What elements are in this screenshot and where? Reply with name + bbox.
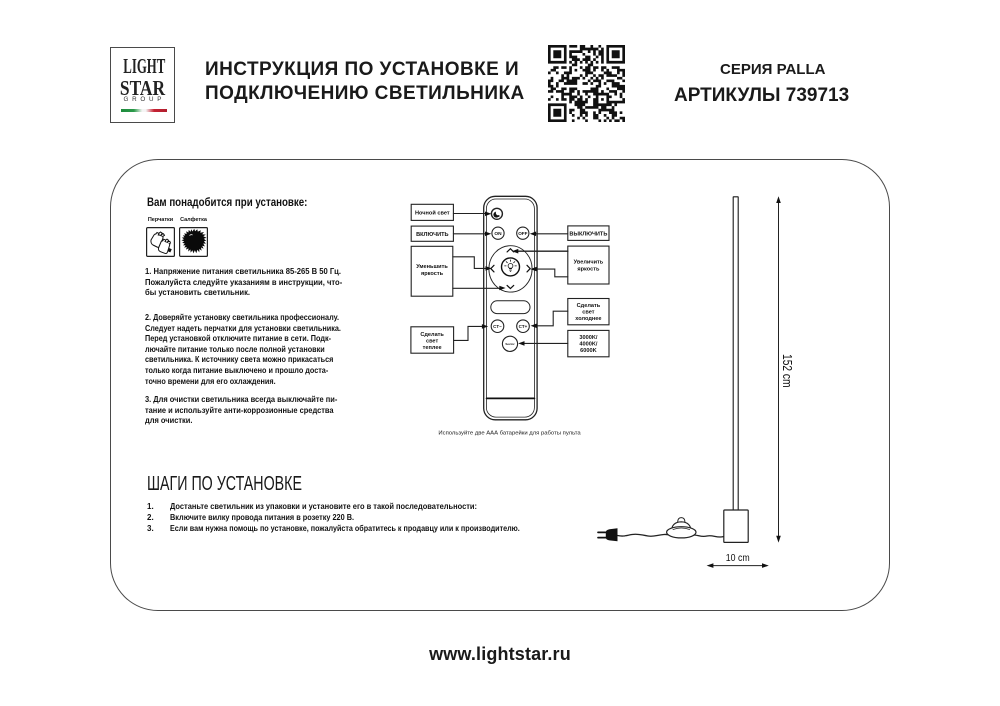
- svg-text:холоднее: холоднее: [575, 316, 601, 322]
- svg-text:Используйте две ААА батарейки: Используйте две ААА батарейки для работы…: [438, 430, 581, 437]
- svg-text:152 cm: 152 cm: [780, 354, 793, 388]
- svg-text:ВЫКЛЮЧИТЬ: ВЫКЛЮЧИТЬ: [569, 231, 607, 237]
- svg-text:3000K/: 3000K/: [579, 335, 597, 341]
- svg-text:CT+: CT+: [519, 324, 528, 329]
- svg-text:Увеличить: Увеличить: [574, 260, 604, 266]
- svg-text:свет: свет: [582, 310, 595, 316]
- svg-text:Sector: Sector: [505, 342, 515, 346]
- svg-text:Уменьшить: Уменьшить: [416, 264, 448, 270]
- svg-text:ON: ON: [494, 231, 502, 237]
- svg-text:10 cm: 10 cm: [726, 551, 750, 563]
- svg-text:теплее: теплее: [423, 345, 442, 351]
- svg-text:6000K: 6000K: [580, 348, 596, 354]
- svg-text:яркость: яркость: [421, 271, 444, 277]
- svg-text:яркость: яркость: [577, 267, 600, 273]
- svg-text:Сделать: Сделать: [420, 332, 444, 338]
- svg-text:свет: свет: [426, 338, 439, 344]
- svg-text:OFF: OFF: [518, 231, 527, 236]
- svg-text:Сделать: Сделать: [577, 303, 601, 309]
- svg-text:ВКЛЮЧИТЬ: ВКЛЮЧИТЬ: [416, 232, 448, 238]
- svg-text:4000K/: 4000K/: [579, 342, 597, 348]
- svg-text:CT−: CT−: [493, 324, 502, 329]
- svg-text:Ночной свет: Ночной свет: [415, 210, 450, 217]
